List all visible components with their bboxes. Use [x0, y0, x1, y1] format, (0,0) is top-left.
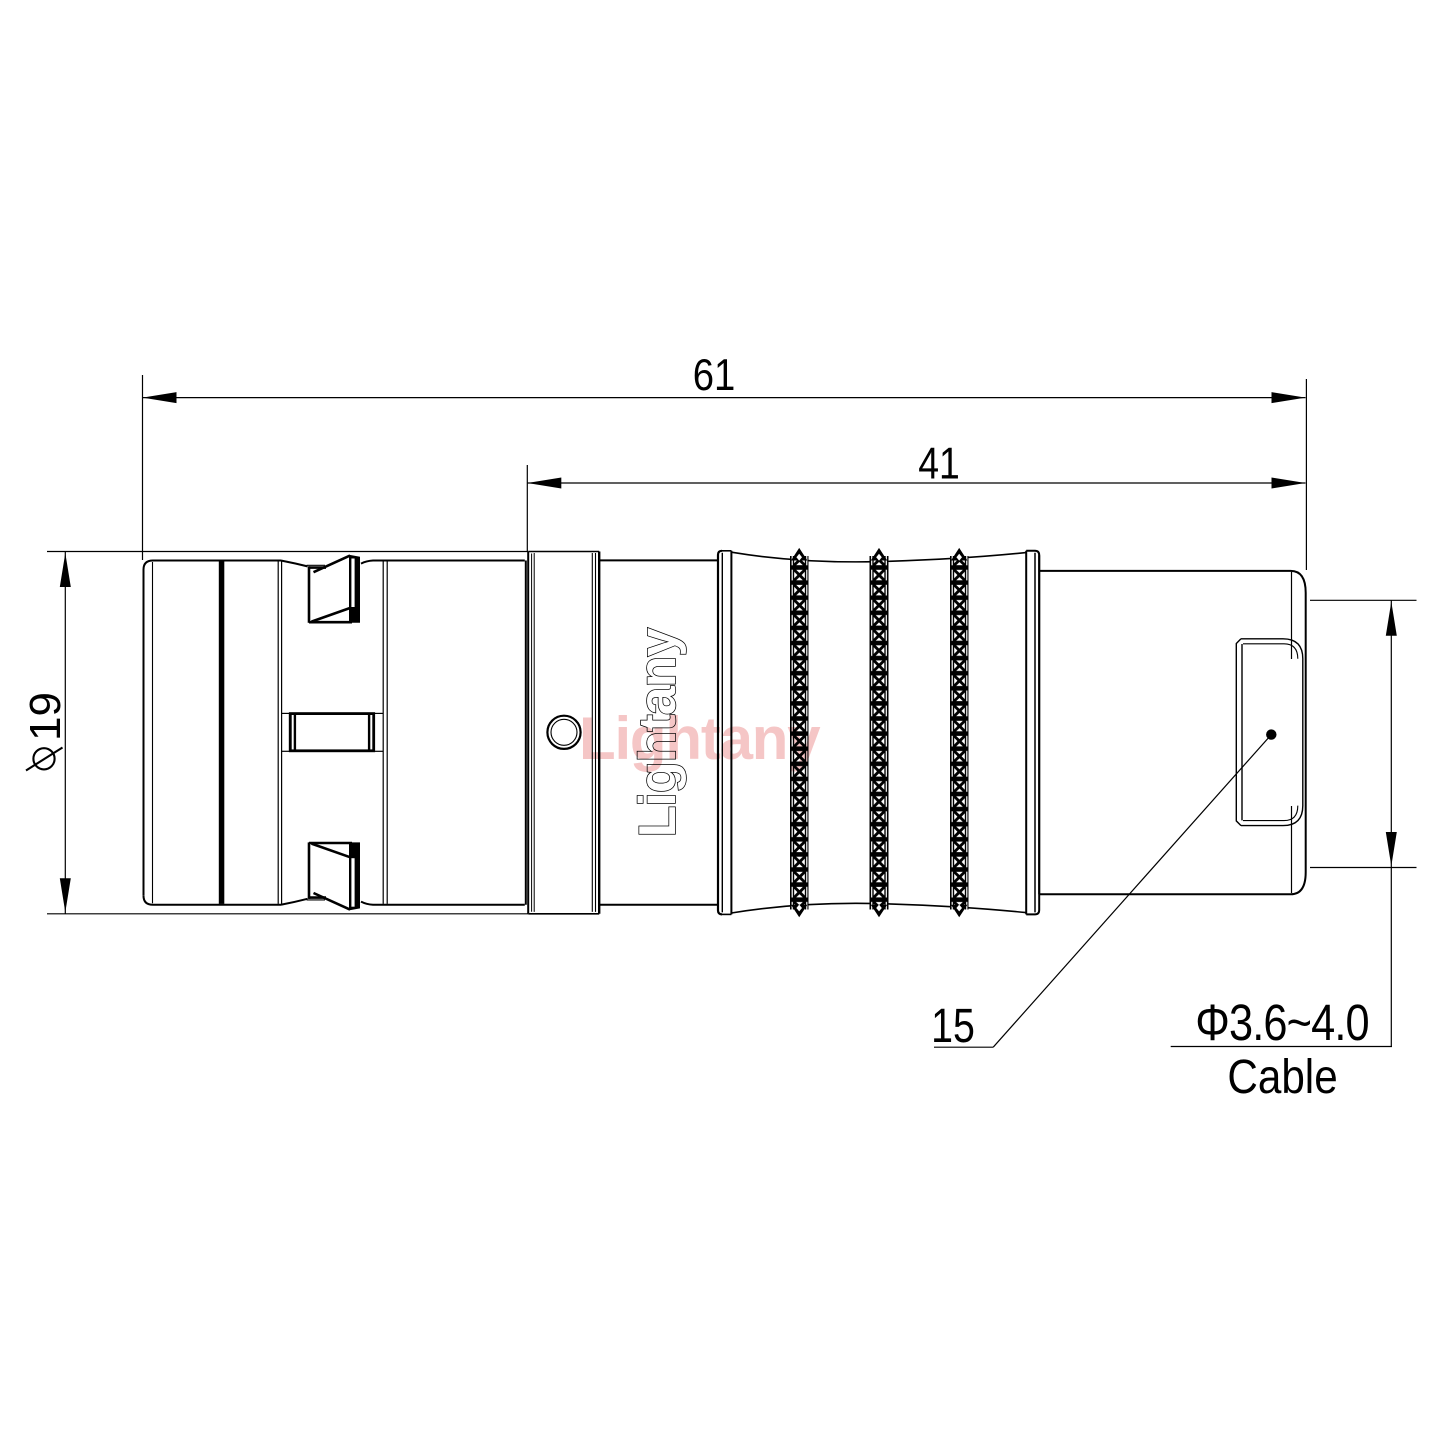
svg-text:19: 19: [21, 692, 70, 741]
svg-text:41: 41: [918, 438, 960, 488]
svg-text:Lightany: Lightany: [579, 705, 821, 772]
svg-text:Φ3.6~4.0: Φ3.6~4.0: [1195, 995, 1369, 1052]
svg-text:Cable: Cable: [1227, 1049, 1337, 1103]
svg-text:15: 15: [931, 999, 975, 1053]
svg-text:61: 61: [693, 349, 736, 399]
